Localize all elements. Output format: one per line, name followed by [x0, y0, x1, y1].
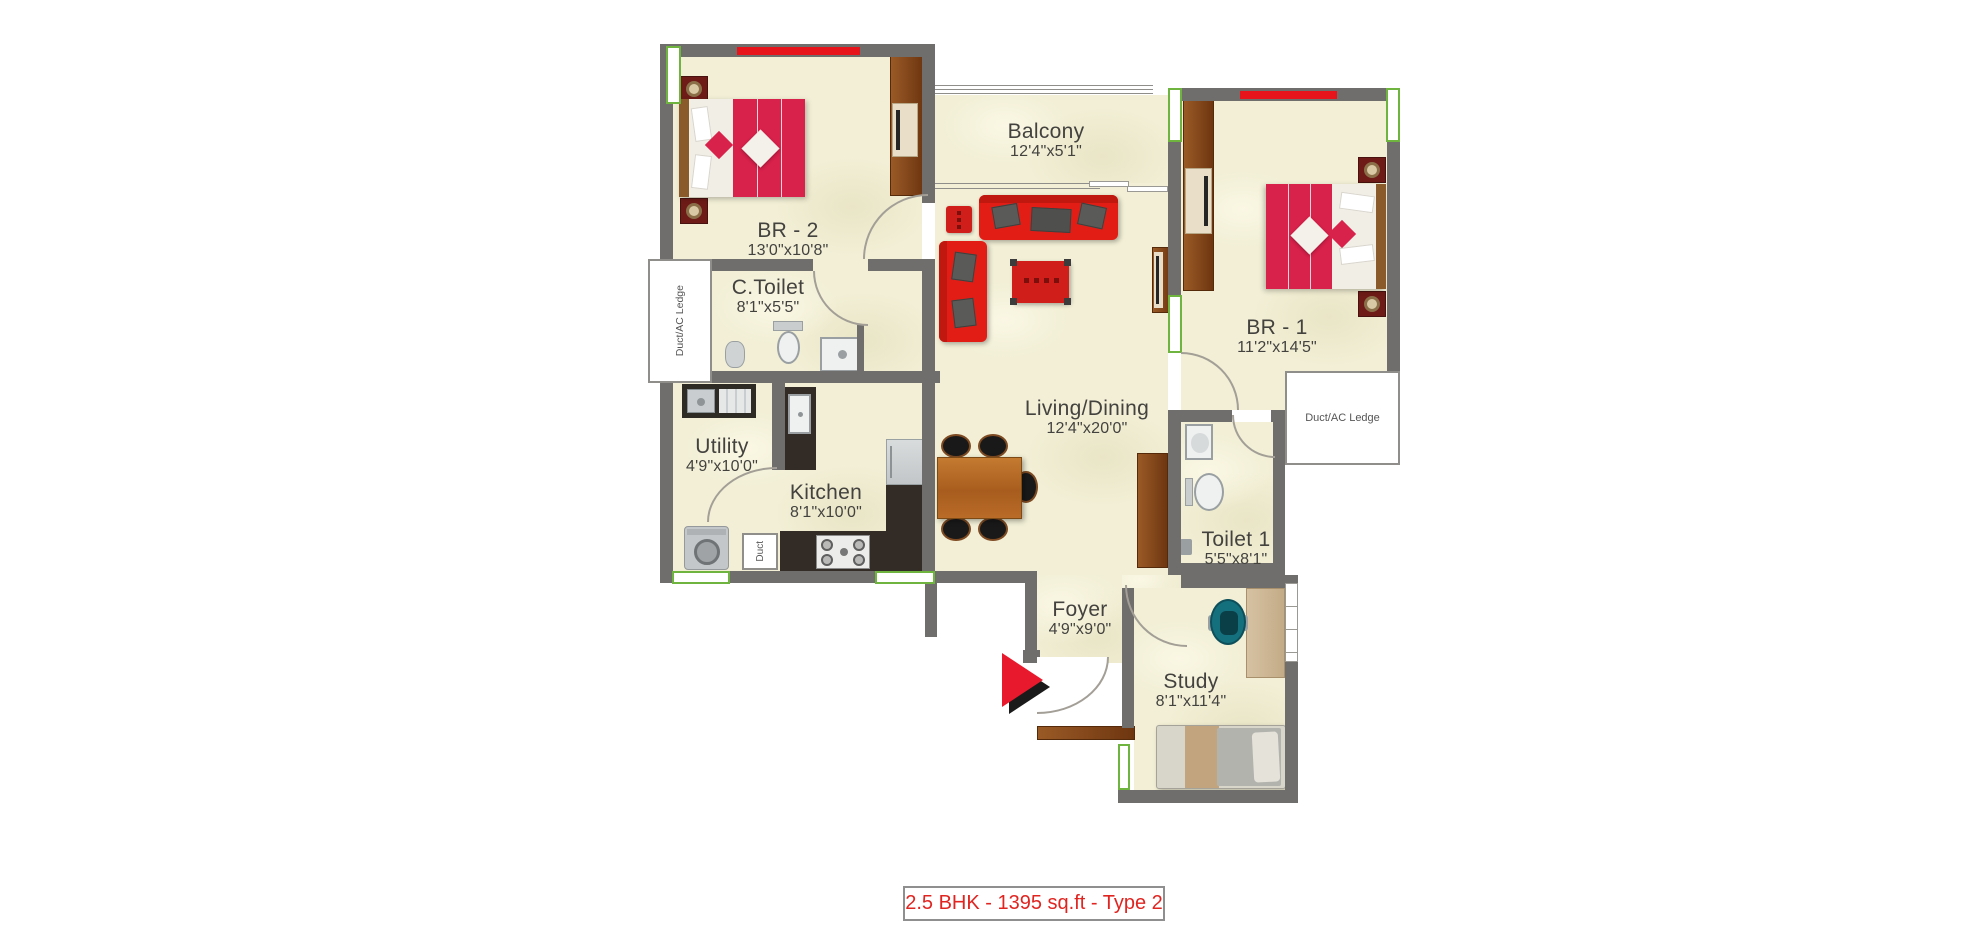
- room-dims: 8'1"x11'4": [1156, 693, 1227, 711]
- wm-drum-icon: [694, 539, 720, 565]
- window: [875, 571, 935, 584]
- sliding-door-panel: [1127, 186, 1168, 192]
- duct-ac-ledge-right-label: Duct/AC Ledge: [1305, 412, 1380, 424]
- chair-seat: [1210, 599, 1246, 645]
- tv-unit-br1: [1185, 168, 1212, 234]
- sofa-back: [979, 195, 1118, 203]
- sofa-cushion: [951, 252, 977, 283]
- wall: [1168, 410, 1181, 575]
- tv-unit-br2: [892, 103, 918, 157]
- wash-basin: [725, 341, 745, 368]
- duct-ac-ledge-left: Duct/AC Ledge: [648, 259, 712, 383]
- dining-chair: [941, 517, 971, 541]
- room-name: Utility: [686, 435, 758, 458]
- double-bed-br1: [1266, 184, 1386, 289]
- dining-chair: [978, 434, 1008, 458]
- blanket-seam: [1288, 184, 1289, 289]
- burner-icon: [821, 554, 833, 566]
- room-name: Kitchen: [790, 481, 862, 504]
- table-dot: [1024, 278, 1029, 283]
- plan-caption: 2.5 BHK - 1395 sq.ft - Type 2: [903, 886, 1165, 921]
- entrance-arrow-icon: [1002, 652, 1054, 716]
- stove-knob: [840, 548, 848, 556]
- toilet: [777, 331, 800, 364]
- room-name: Toilet 1: [1202, 528, 1271, 551]
- kitchen-sink: [788, 394, 811, 434]
- double-bed-br2: [679, 99, 805, 197]
- wall: [868, 259, 922, 271]
- sliding-door-panel: [1089, 181, 1129, 187]
- wall: [1025, 583, 1037, 663]
- wall: [1181, 575, 1285, 588]
- red-accent-strip: [737, 47, 860, 55]
- room-label-living-dining: Living/Dining 12'4"x20'0": [1025, 397, 1149, 438]
- table-foot: [1064, 298, 1071, 305]
- balcony-sill: [935, 183, 1100, 184]
- tv-icon: [1156, 256, 1159, 304]
- pillow: [1252, 731, 1281, 782]
- balcony-sill: [935, 188, 1100, 189]
- sofa-cushion: [951, 298, 976, 328]
- floor-plan: Duct/AC Ledge Duct/AC Ledge Duct BR - 2 …: [0, 0, 1980, 938]
- lamp-icon: [686, 81, 702, 97]
- blanket-seam: [781, 99, 782, 197]
- study-window: [1285, 583, 1298, 662]
- wall: [772, 383, 785, 470]
- sofa-long: [979, 195, 1118, 240]
- basin-bowl: [1191, 433, 1209, 453]
- fridge-handle: [890, 446, 892, 478]
- side-table: [946, 206, 972, 233]
- sofa-cushion: [1030, 207, 1071, 233]
- room-label-foyer: Foyer 4'9"x9'0": [1049, 598, 1112, 639]
- room-label-balcony: Balcony 12'4"x5'1": [1008, 120, 1085, 161]
- wall: [922, 259, 935, 583]
- table-dot: [1034, 278, 1039, 283]
- room-dims: 12'4"x20'0": [1025, 420, 1149, 438]
- room-name: BR - 2: [747, 219, 828, 242]
- lamp-icon: [1364, 296, 1380, 312]
- shower-fixture-icon: [1180, 539, 1192, 555]
- red-accent-strip: [1240, 91, 1337, 99]
- single-bed-study: [1156, 725, 1286, 789]
- window: [672, 571, 730, 584]
- headboard: [679, 99, 689, 197]
- dining-chair: [978, 517, 1008, 541]
- wm-panel: [687, 529, 726, 535]
- bed-runner: [1185, 726, 1219, 788]
- room-dims: 4'9"x9'0": [1049, 621, 1112, 639]
- room-label-utility: Utility 4'9"x10'0": [686, 435, 758, 476]
- table-dot: [1054, 278, 1059, 283]
- shower-partition: [857, 325, 864, 371]
- toilet-tank: [1185, 478, 1193, 506]
- room-dims: 13'0"x10'8": [747, 242, 828, 260]
- wall: [925, 583, 937, 637]
- room-label-br2: BR - 2 13'0"x10'8": [747, 219, 828, 260]
- dining-table: [937, 457, 1022, 519]
- nightstand: [1358, 291, 1386, 317]
- stove: [816, 535, 870, 569]
- window: [1118, 744, 1130, 790]
- window: [1168, 295, 1182, 353]
- study-desk: [1246, 588, 1285, 678]
- room-dims: 11'2"x14'5": [1237, 339, 1317, 357]
- room-label-ctoilet: C.Toilet 8'1"x5'5": [732, 276, 804, 317]
- duct-label: Duct: [755, 541, 766, 562]
- table-foot: [1010, 298, 1017, 305]
- utility-sink: [687, 389, 715, 413]
- nightstand: [1358, 157, 1386, 183]
- balcony-railing: [935, 85, 1153, 86]
- room-name: Living/Dining: [1025, 397, 1149, 420]
- window: [666, 46, 681, 104]
- lamp-icon: [1364, 162, 1380, 178]
- headboard: [1376, 184, 1386, 289]
- room-dims: 8'1"x10'0": [790, 504, 862, 522]
- sofa-back: [939, 241, 947, 342]
- table-dot: [1044, 278, 1049, 283]
- dining-chair: [941, 434, 971, 458]
- wall: [1168, 142, 1181, 295]
- wall: [922, 44, 935, 203]
- burner-icon: [853, 554, 865, 566]
- shower-tray: [820, 337, 862, 372]
- tv-panel: [1154, 252, 1163, 308]
- sofa-short: [939, 241, 987, 342]
- table-foot: [1064, 259, 1071, 266]
- room-dims: 5'5"x8'1": [1202, 551, 1271, 569]
- toilet-tank: [773, 321, 803, 331]
- utility-sink-unit: [682, 384, 756, 418]
- toilet: [1194, 473, 1224, 511]
- room-name: BR - 1: [1237, 316, 1317, 339]
- room-label-study: Study 8'1"x11'4": [1156, 670, 1227, 711]
- room-label-toilet1: Toilet 1 5'5"x8'1": [1202, 528, 1271, 569]
- wall: [1118, 790, 1298, 803]
- coffee-table: [1012, 261, 1069, 303]
- room-label-br1: BR - 1 11'2"x14'5": [1237, 316, 1317, 357]
- duct-box: Duct: [742, 533, 778, 570]
- window: [1168, 88, 1182, 142]
- sink-drain: [798, 412, 803, 417]
- washing-machine: [684, 526, 729, 570]
- balcony-railing: [935, 93, 1153, 94]
- room-name: Study: [1156, 670, 1227, 693]
- sofa-cushion: [1077, 203, 1107, 230]
- drainboard: [719, 389, 751, 413]
- office-chair: [1208, 599, 1248, 645]
- table-dot: [957, 211, 961, 215]
- room-dims: 8'1"x5'5": [732, 299, 804, 317]
- shower-drain: [838, 350, 847, 359]
- room-dims: 4'9"x10'0": [686, 458, 758, 476]
- kitchen-counter-left: [783, 387, 816, 470]
- duct-ac-ledge-right: Duct/AC Ledge: [1285, 371, 1400, 465]
- room-name: Balcony: [1008, 120, 1085, 143]
- balcony-railing: [935, 89, 1153, 90]
- table-dot: [957, 218, 961, 222]
- room-name: C.Toilet: [732, 276, 804, 299]
- wall: [660, 371, 673, 583]
- burner-icon: [821, 539, 833, 551]
- tv-icon: [896, 110, 900, 150]
- burner-icon: [853, 539, 865, 551]
- window: [1386, 88, 1400, 142]
- table-dot: [957, 225, 961, 229]
- entrance-step: [1037, 726, 1135, 740]
- duct-ac-ledge-left-label: Duct/AC Ledge: [674, 285, 686, 356]
- wash-basin: [1185, 424, 1213, 460]
- room-name: Foyer: [1049, 598, 1112, 621]
- sofa-cushion: [991, 203, 1020, 229]
- tv-icon: [1204, 176, 1208, 226]
- floor-plan-page: Duct/AC Ledge Duct/AC Ledge Duct BR - 2 …: [0, 0, 1980, 938]
- sink-drain: [697, 398, 705, 406]
- lamp-icon: [686, 203, 702, 219]
- room-dims: 12'4"x5'1": [1008, 143, 1085, 161]
- table-foot: [1010, 259, 1017, 266]
- crockery-cabinet: [1137, 453, 1168, 568]
- room-label-kitchen: Kitchen 8'1"x10'0": [790, 481, 862, 522]
- nightstand: [680, 198, 708, 224]
- chair-back: [1220, 611, 1238, 635]
